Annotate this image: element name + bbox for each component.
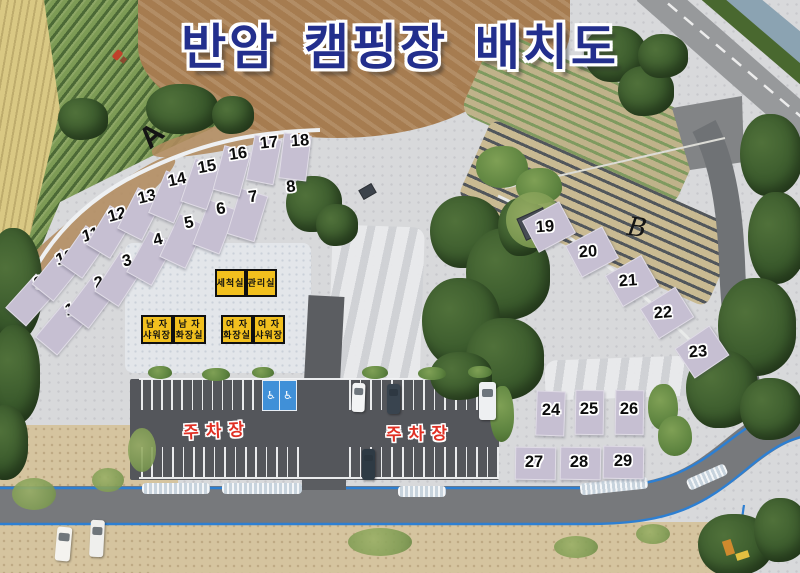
stall-line: [413, 447, 415, 477]
stall-line: [381, 447, 383, 477]
site-number-25: 25: [580, 401, 598, 418]
stall-line: [212, 380, 214, 410]
stall-line: [391, 447, 393, 477]
car: [387, 384, 400, 414]
site-number-16: 16: [228, 145, 248, 164]
van: [55, 526, 73, 561]
stall-line: [266, 447, 268, 477]
car: [351, 383, 365, 412]
stall-line: [255, 447, 257, 477]
stall-line: [402, 447, 404, 477]
stall-line: [423, 380, 425, 410]
facility-label-line: 여 자: [226, 319, 248, 330]
stall-line: [203, 447, 205, 477]
vehicle-windshield: [354, 388, 363, 395]
site-number-20: 20: [578, 243, 597, 261]
grass-patch: [128, 428, 156, 472]
stall-line: [487, 447, 489, 477]
stall-line: [276, 447, 278, 477]
point-marker-B: B: [626, 214, 649, 242]
accessible-parking: ♿ ♿: [262, 380, 297, 411]
stall-line: [141, 380, 143, 410]
stall-line: [171, 380, 173, 410]
stall-line: [370, 380, 372, 410]
stall-line: [245, 447, 247, 477]
grass-patch: [12, 478, 56, 510]
stall-line: [466, 447, 468, 477]
planted-median: [222, 483, 302, 494]
site-number-8: 8: [286, 178, 297, 195]
site-number-15: 15: [197, 157, 218, 176]
site-number-29: 29: [614, 453, 632, 470]
facility-label-line: 샤워장: [143, 330, 171, 341]
stall-line: [193, 447, 195, 477]
stall-line: [214, 447, 216, 477]
site-number-19: 19: [535, 218, 554, 236]
grass-patch: [636, 524, 670, 544]
van: [89, 520, 105, 558]
facility-label-line: 세척실: [217, 278, 245, 289]
stall-line: [497, 447, 499, 477]
stall-line: [455, 447, 457, 477]
bush: [252, 367, 274, 378]
planted-median: [142, 483, 210, 494]
grass-patch: [92, 468, 124, 492]
wheelchair-icon: ♿: [280, 381, 296, 410]
bush: [658, 416, 692, 456]
tree-cluster: [212, 96, 254, 134]
tree-cluster: [748, 192, 800, 284]
parking-label-1: 주차장: [182, 415, 251, 444]
car: [362, 449, 375, 480]
stall-line: [360, 447, 362, 477]
stall-line: [413, 380, 415, 410]
facility-label-line: 샤워장: [255, 330, 283, 341]
stall-line: [297, 447, 299, 477]
site-number-17: 17: [259, 134, 279, 152]
parking-label-2: 주차장: [386, 419, 454, 445]
bush: [418, 367, 446, 380]
facility-mens-toilet: 남 자화장실: [173, 315, 206, 344]
bush: [202, 368, 230, 381]
site-number-18: 18: [290, 132, 309, 150]
facility-womens-shower: 여 자샤워장: [253, 315, 285, 344]
stall-line: [151, 380, 153, 410]
stall-line: [224, 447, 226, 477]
vehicle-windshield: [92, 526, 102, 535]
tree-cluster: [740, 378, 800, 440]
vehicle-windshield: [59, 533, 70, 541]
stall-line: [172, 447, 174, 477]
tree-cluster: [58, 98, 108, 140]
stall-line: [434, 447, 436, 477]
grass-patch: [554, 536, 598, 558]
tree-cluster: [316, 204, 358, 246]
facility-label-line: 화장실: [176, 330, 204, 341]
stall-line: [161, 380, 163, 410]
site-number-26: 26: [620, 401, 638, 418]
vehicle-windshield: [389, 389, 398, 396]
tree-cluster: [740, 114, 800, 196]
stall-line: [202, 380, 204, 410]
site-number-23: 23: [688, 343, 707, 361]
grass-patch: [348, 528, 412, 556]
bush: [362, 366, 388, 379]
site-number-28: 28: [570, 454, 588, 471]
stall-line: [252, 380, 254, 410]
site-number-21: 21: [618, 272, 637, 290]
vehicle-windshield: [364, 455, 373, 462]
truck: [479, 382, 496, 420]
stall-line: [349, 447, 351, 477]
bush: [148, 366, 172, 379]
facility-label-line: 관리실: [248, 278, 276, 289]
stall-line: [242, 380, 244, 410]
stall-line: [183, 447, 185, 477]
facility-washing-room: 세척실: [215, 269, 246, 297]
facility-label-line: 화장실: [223, 330, 251, 341]
stall-line: [444, 447, 446, 477]
map-title: 반암 캠핑장 배치도: [0, 8, 800, 79]
tree-cluster: [754, 498, 800, 562]
stall-line: [181, 380, 183, 410]
stall-line: [287, 447, 289, 477]
stall-line: [162, 447, 164, 477]
facility-management-office: 관리실: [246, 269, 277, 297]
stall-line: [349, 380, 351, 410]
parking-line: [139, 477, 499, 479]
vehicle-windshield: [482, 389, 494, 397]
facility-mens-shower: 남 자샤워장: [141, 315, 173, 344]
facility-womens-toilet: 여 자화장실: [221, 315, 253, 344]
facility-label-line: 남 자: [146, 319, 168, 330]
site-number-22: 22: [653, 304, 672, 322]
stall-line: [192, 380, 194, 410]
facility-label-line: 남 자: [178, 319, 200, 330]
site-number-24: 24: [542, 402, 560, 419]
campground-layout-map: ♿ ♿ 123456789101112: [0, 0, 800, 573]
bush: [468, 366, 492, 378]
stall-line: [222, 380, 224, 410]
facility-label-line: 여 자: [258, 319, 280, 330]
stall-line: [423, 447, 425, 477]
stall-line: [402, 380, 404, 410]
stall-line: [235, 447, 237, 477]
planted-median: [398, 486, 446, 497]
stall-line: [381, 380, 383, 410]
site-number-27: 27: [525, 454, 543, 471]
stall-line: [476, 447, 478, 477]
stall-line: [232, 380, 234, 410]
wheelchair-icon: ♿: [263, 381, 280, 410]
